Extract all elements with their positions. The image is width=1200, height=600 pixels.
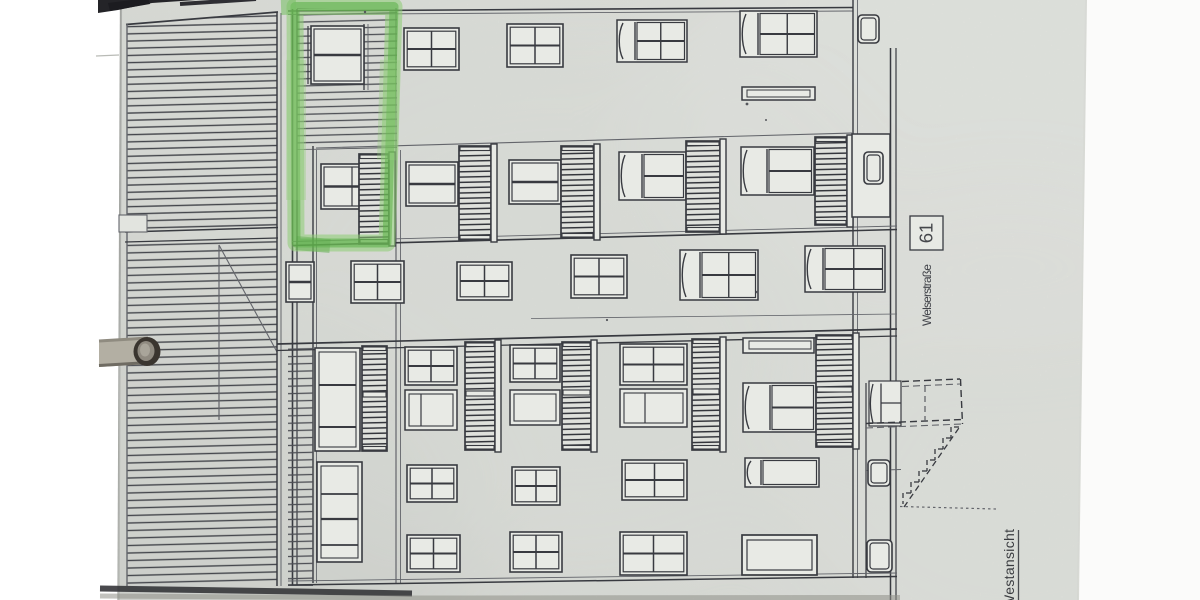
svg-text:61: 61: [916, 223, 937, 244]
svg-text:Westansicht: Westansicht: [1001, 529, 1017, 600]
svg-text:Welserstraße: Welserstraße: [920, 264, 934, 326]
